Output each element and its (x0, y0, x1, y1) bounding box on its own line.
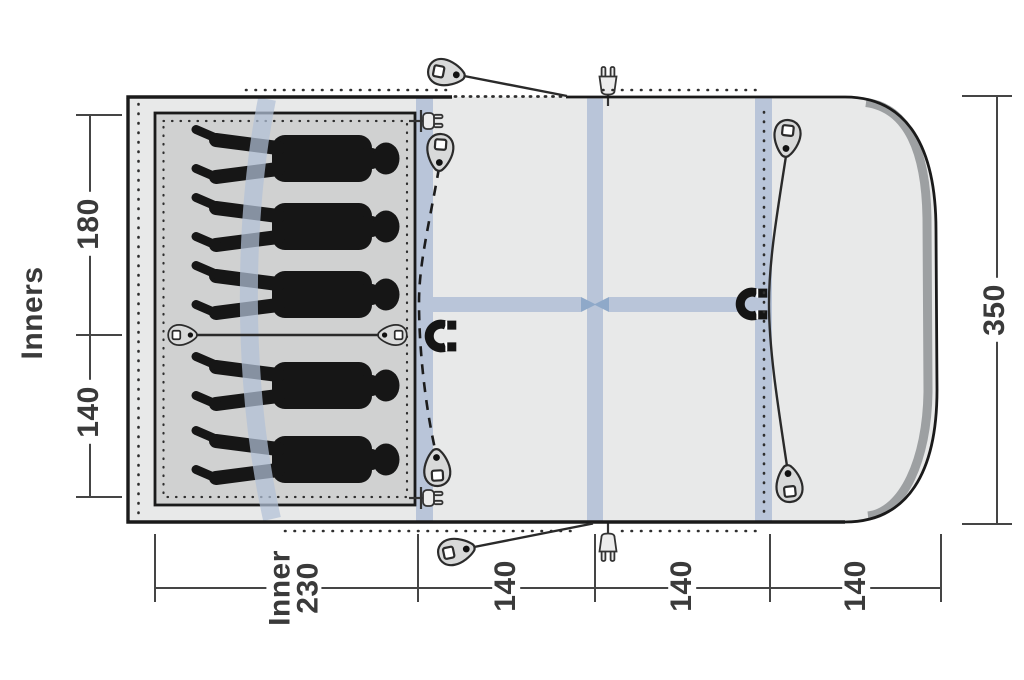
power-inlet-icon-bottom (600, 522, 617, 561)
inners-label: Inners (19, 260, 47, 365)
dim-label-140-b3: 140 (842, 554, 870, 618)
tension-toggle-icon (426, 57, 467, 90)
dim-label-inner-230: Inner 230 (266, 544, 321, 632)
tent-floorplan-diagram: Inners 180 140 350 Inner 230 140 140 140 (0, 0, 1024, 680)
dim-label-180: 180 (75, 192, 103, 256)
dim-label-140-left: 140 (75, 380, 103, 444)
dim-label-140-b2: 140 (668, 554, 696, 618)
dim-label-140-b1: 140 (492, 554, 520, 618)
tension-toggle-icon (436, 535, 477, 568)
dim-label-350: 350 (981, 278, 1009, 342)
